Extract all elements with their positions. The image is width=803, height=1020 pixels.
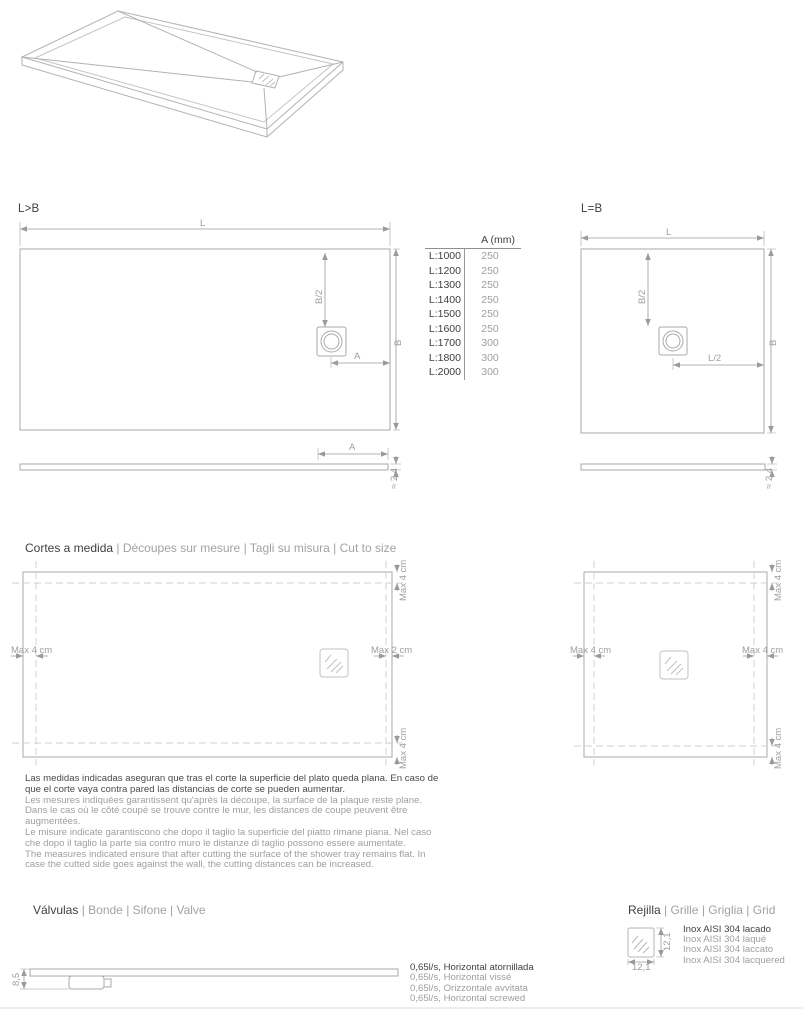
eq-length-label: L [666, 227, 671, 238]
lb-length-label: L [200, 218, 205, 229]
measures-note: Las medidas indicadas aseguran que tras … [25, 774, 443, 871]
table-row: L:1000250 [420, 249, 521, 264]
table-row: L:1800300 [420, 351, 521, 366]
lb-thickness-label: ≈ 2,4 [389, 468, 400, 489]
eq-plan-drawing [581, 231, 776, 433]
table-row: L:1700300 [420, 336, 521, 351]
cut-rect-max-right-label: Max 2 cm [371, 645, 412, 656]
grid-size-vertical-label: 12,1 [662, 933, 673, 952]
cut-rect-drain-icon [320, 649, 348, 677]
valves-section-title: Válvulas | Bonde | Sifone | Valve [33, 903, 206, 917]
eq-thickness-label: ≈ 2,4 [764, 468, 775, 489]
hero-isometric-drawing [22, 11, 343, 137]
eq-profile-drawing [581, 456, 777, 478]
eq-half-length-label: L/2 [708, 353, 721, 364]
grid-section-title: Rejilla | Grille | Griglia | Grid [628, 903, 775, 917]
grid-title-primary: Rejilla [628, 903, 661, 917]
grid-specs: Inox AISI 304 lacado Inox AISI 304 laqué… [683, 925, 785, 966]
table-row: L:1500250 [420, 307, 521, 322]
valves-title-secondary: | Bonde | Sifone | Valve [82, 903, 206, 917]
lb-section-title: L>B [18, 203, 39, 215]
table-row: L:1300250 [420, 278, 521, 293]
eq-width-label: B [768, 340, 779, 346]
valves-title-primary: Válvulas [33, 903, 78, 917]
grid-spec-en: Inox AISI 304 lacquered [683, 956, 785, 966]
grid-drawing [628, 928, 664, 965]
cuts-title-primary: Cortes a medida [25, 541, 113, 555]
cut-square-max-bottom-label: Max 4 cm [773, 728, 784, 769]
cut-square-drawing [573, 561, 780, 768]
lb-profile-drawing [20, 448, 401, 478]
lb-profile-offset-label: A [349, 442, 355, 453]
table-row: L:1200250 [420, 264, 521, 279]
cut-square-max-top-label: Max 4 cm [773, 560, 784, 601]
measures-note-en: The measures indicated ensure that after… [25, 850, 443, 872]
valve-height-label: 8,5 [11, 973, 22, 986]
eq-half-width-label: B/2 [637, 290, 648, 304]
table-row: L:1400250 [420, 293, 521, 308]
measures-note-it: Le misure indicate garantiscono che dopo… [25, 828, 443, 850]
grid-size-horizontal-label: 12,1 [632, 962, 651, 973]
cut-square-max-left-label: Max 4 cm [570, 645, 611, 656]
valve-specs: 0,65l/s, Horizontal atornillada 0,65l/s,… [410, 963, 534, 1005]
lb-drain-offset-label: A [354, 351, 360, 362]
table-row: L:2000300 [420, 365, 521, 380]
cut-rect-max-bottom-label: Max 4 cm [398, 728, 409, 769]
eq-section-title: L=B [581, 203, 602, 215]
lb-width-label: B [393, 340, 404, 346]
cut-rect-max-left-label: Max 4 cm [11, 645, 52, 656]
hero-drain-icon [252, 71, 279, 88]
spec-sheet: L>B L=B L B B/2 A A ≈ 2,4 L B B/2 L/2 ≈ … [0, 0, 803, 1020]
lb-half-width-label: B/2 [314, 290, 325, 304]
cuts-title-secondary: | Découpes sur mesure | Tagli su misura … [116, 541, 396, 555]
valve-drawing [20, 969, 398, 989]
cut-square-max-right-label: Max 4 cm [742, 645, 783, 656]
cut-rect-max-top-label: Max 4 cm [398, 560, 409, 601]
measures-note-es: Las medidas indicadas aseguran que tras … [25, 774, 443, 796]
valve-spec-en: 0,65l/s, Horizontal screwed [410, 994, 534, 1004]
grid-title-secondary: | Grille | Griglia | Grid [664, 903, 775, 917]
cut-rect-drawing [11, 561, 404, 768]
cuts-section-title: Cortes a medida | Découpes sur mesure | … [25, 541, 396, 555]
lb-plan-drawing [20, 222, 400, 430]
lb-drain-icon [317, 327, 346, 356]
table-row: L:1600250 [420, 322, 521, 337]
table-header: A (mm) [425, 234, 521, 249]
eq-drain-icon [659, 327, 687, 355]
drain-offset-table: A (mm) L:1000250 L:1200250 L:1300250 L:1… [420, 234, 521, 380]
measures-note-fr: Les mesures indiquées garantissent qu'ap… [25, 796, 443, 828]
grid-drain-icon [628, 928, 654, 957]
cut-square-drain-icon [660, 651, 688, 679]
